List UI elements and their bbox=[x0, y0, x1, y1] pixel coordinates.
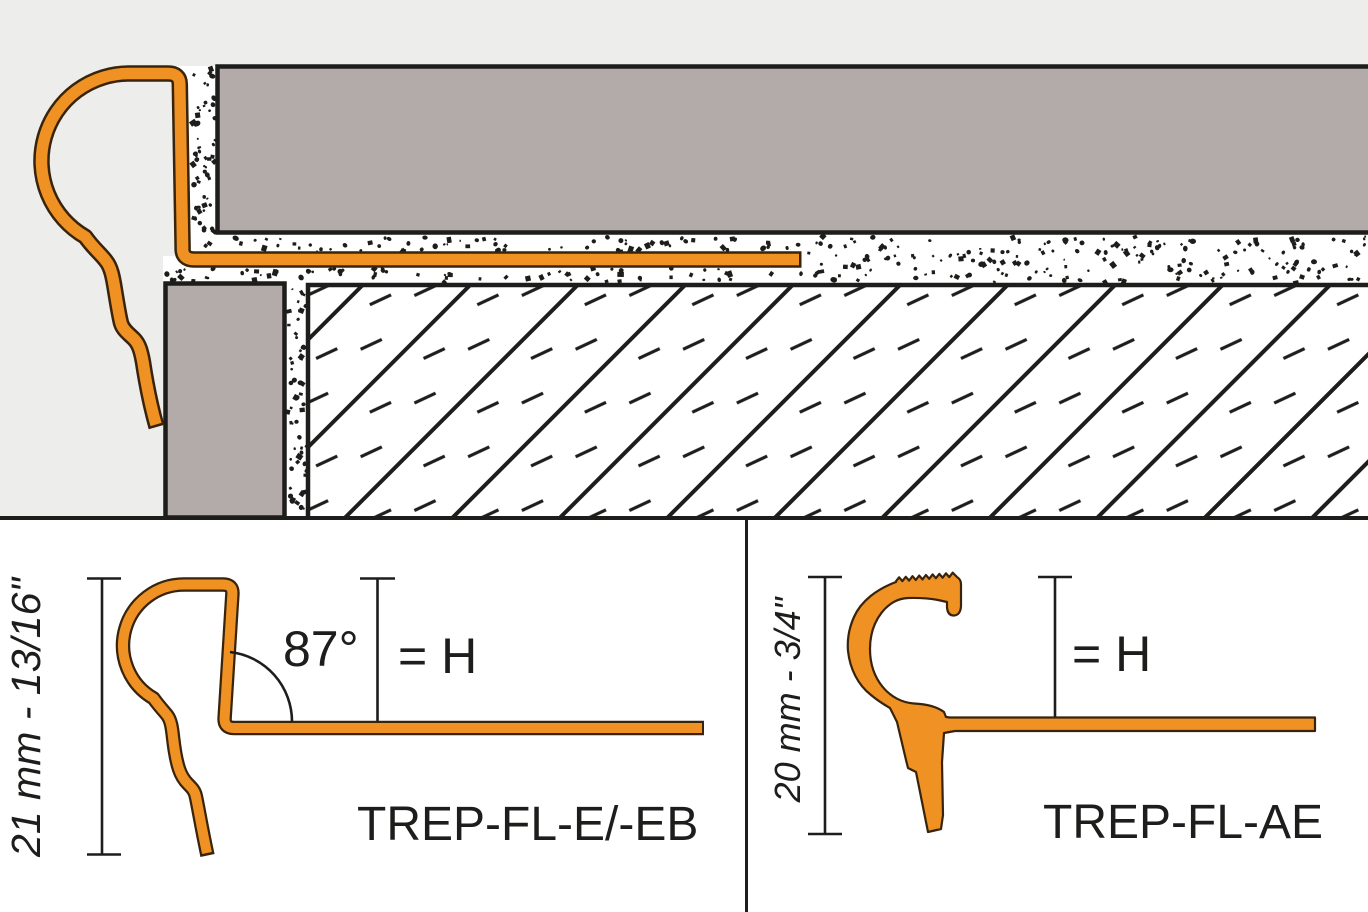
svg-text:87°: 87° bbox=[283, 621, 359, 677]
svg-text:= H: = H bbox=[398, 628, 477, 684]
svg-text:= H: = H bbox=[1072, 626, 1151, 682]
svg-text:21 mm - 13/16": 21 mm - 13/16" bbox=[3, 576, 49, 858]
svg-text:20 mm - 3/4": 20 mm - 3/4" bbox=[767, 595, 808, 803]
svg-text:TREP-FL-AE: TREP-FL-AE bbox=[1043, 796, 1323, 849]
svg-text:TREP-FL-E/-EB: TREP-FL-E/-EB bbox=[357, 798, 698, 851]
